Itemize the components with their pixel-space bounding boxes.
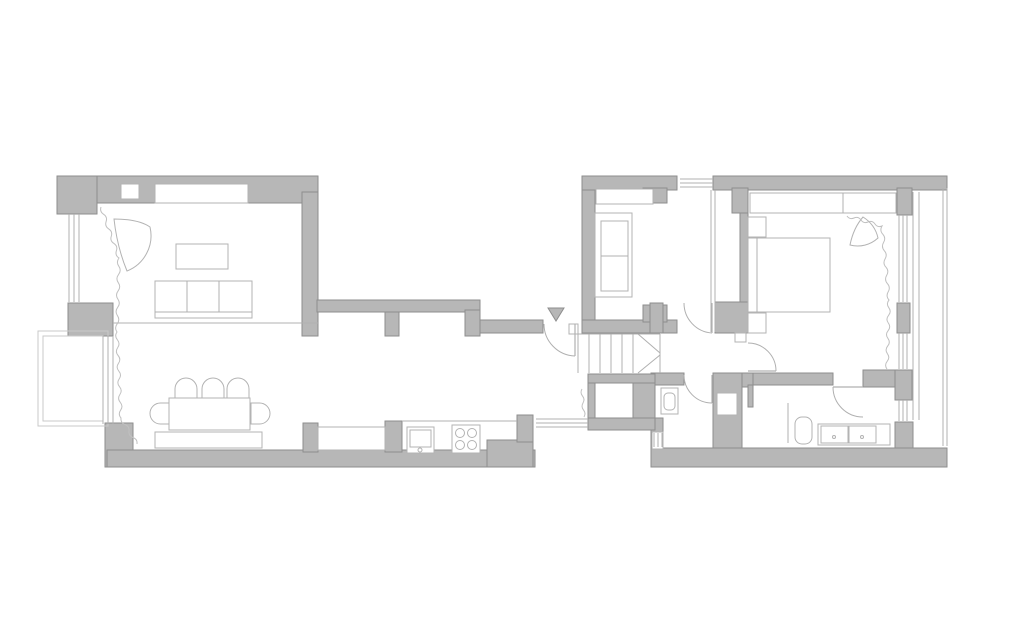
floor-plan-page bbox=[0, 0, 1024, 633]
wall-understairs-bottom bbox=[588, 418, 655, 430]
dining-chair-1 bbox=[175, 378, 197, 398]
canvas-background bbox=[0, 0, 1024, 633]
wall-bath-top-right bbox=[863, 370, 895, 387]
hall-door-stop bbox=[735, 333, 746, 342]
wall-kitchen-pier-left bbox=[303, 423, 318, 452]
wall-bedroom-door-jamb bbox=[748, 385, 753, 407]
dining-chair-left bbox=[150, 403, 169, 424]
wall-corridor-pier-2 bbox=[465, 310, 480, 336]
wall-right-pier-mid bbox=[897, 303, 910, 333]
stove bbox=[452, 425, 480, 453]
nightstand-top bbox=[748, 217, 766, 237]
cabinet-living-top bbox=[155, 184, 248, 203]
dining-chair-2 bbox=[202, 378, 224, 398]
wall-right-block-left bbox=[582, 190, 595, 332]
wall-hall-right-chunk bbox=[715, 302, 753, 333]
entry-hinge-plate bbox=[569, 324, 578, 334]
floor-plan-drawing bbox=[0, 0, 1024, 633]
wall-kitchen-pier-mid bbox=[385, 421, 402, 452]
small-room-shelf bbox=[596, 189, 653, 204]
niche-living-top-small bbox=[121, 184, 139, 199]
bed bbox=[748, 238, 830, 312]
wall-living-top-left-corner bbox=[57, 176, 97, 214]
dining-chair-right bbox=[251, 403, 270, 424]
wall-toilet-top bbox=[651, 373, 684, 385]
dining-table bbox=[169, 398, 250, 430]
coffee-table bbox=[176, 244, 228, 269]
wall-hall-left-pier bbox=[650, 303, 663, 333]
wall-bedroom-left-thin bbox=[740, 213, 748, 303]
vanity-sink-right bbox=[849, 426, 876, 443]
wc-bowl bbox=[664, 393, 675, 410]
radiator-dining bbox=[155, 432, 262, 448]
niche-kitchen-window bbox=[318, 427, 385, 450]
wall-corridor-top-band bbox=[317, 300, 480, 312]
wall-bedroom-left-top bbox=[732, 188, 748, 213]
wall-living-right bbox=[302, 192, 318, 336]
wall-kitchen-step bbox=[487, 440, 533, 467]
wall-bath-top-left bbox=[753, 373, 833, 385]
bath-fixture bbox=[795, 417, 812, 444]
wall-right-pier-top bbox=[897, 188, 912, 215]
shaft-box bbox=[717, 393, 737, 415]
vanity-sink-left bbox=[821, 426, 848, 443]
wall-right-pier-low bbox=[895, 370, 912, 400]
wardrobe bbox=[750, 193, 896, 213]
wall-kitchen-right-pier bbox=[517, 415, 533, 442]
kitchen-sink-bowl bbox=[410, 430, 431, 447]
dining-chair-3 bbox=[227, 378, 249, 398]
nightstand-bottom bbox=[748, 313, 766, 333]
wall-entry-band bbox=[480, 320, 543, 333]
wall-understairs-band bbox=[588, 374, 655, 383]
wall-corridor-pier-1 bbox=[385, 312, 399, 336]
wall-bottom-right-band bbox=[651, 448, 947, 467]
